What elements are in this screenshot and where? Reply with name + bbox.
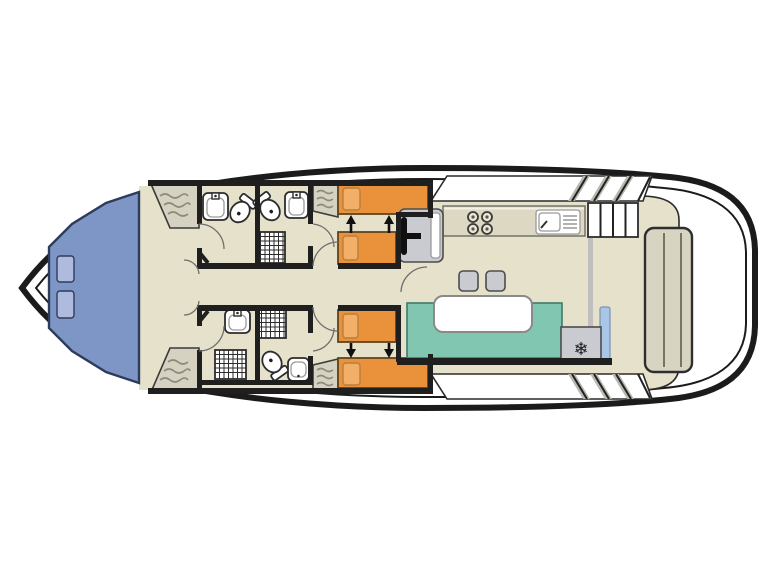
sink-icon xyxy=(536,210,580,234)
stool-2 xyxy=(486,271,505,291)
bow-pillow-1 xyxy=(57,256,74,282)
shower-icon xyxy=(256,232,285,263)
pillow xyxy=(343,188,360,210)
boat-floor-plan: ❄ xyxy=(0,0,768,576)
stool-1 xyxy=(459,271,478,291)
dinette-table xyxy=(434,296,532,332)
shower-icon xyxy=(215,350,246,379)
fridge: ❄ xyxy=(561,327,601,361)
sink-icon xyxy=(288,358,309,381)
pillow xyxy=(343,236,358,260)
sink-icon xyxy=(225,310,250,333)
bow-pillow-2 xyxy=(57,291,74,318)
aft-bench xyxy=(645,228,692,372)
aft-steps-icon xyxy=(588,203,638,237)
galley xyxy=(443,206,585,236)
snowflake-icon: ❄ xyxy=(573,339,588,360)
deck-plan-svg: ❄ xyxy=(0,0,768,576)
shower-icon xyxy=(257,309,286,338)
sink-icon xyxy=(285,192,308,218)
bow-cabin xyxy=(49,192,139,383)
wardrobe-mid-bottom xyxy=(313,359,338,391)
wardrobe-mid-top xyxy=(313,185,338,217)
pillow xyxy=(343,314,358,338)
bow-double-bed xyxy=(49,192,139,383)
sink-icon xyxy=(203,193,228,220)
pillow xyxy=(343,363,360,385)
